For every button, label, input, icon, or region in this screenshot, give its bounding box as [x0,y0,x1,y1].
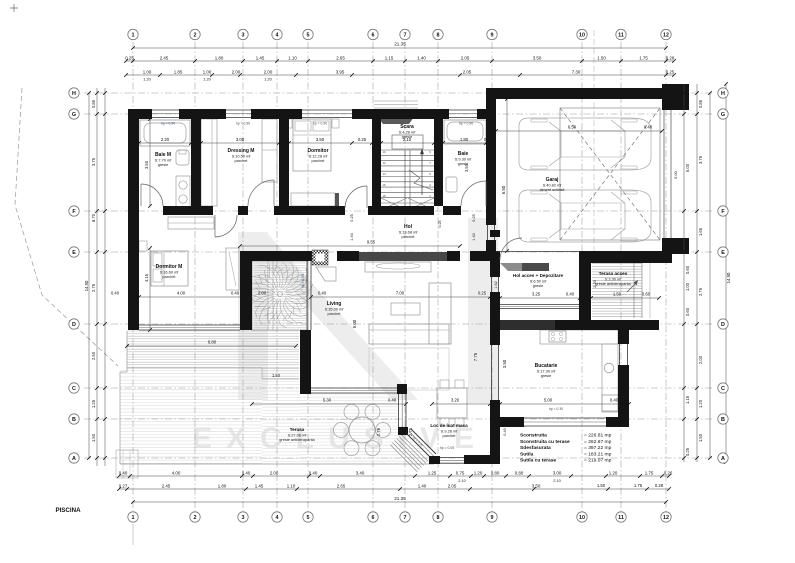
svg-text:0.25: 0.25 [438,221,442,228]
svg-text:1: 1 [132,515,135,521]
svg-text:gresie antiderapanta: gresie antiderapanta [595,281,631,286]
svg-text:1.00: 1.00 [143,69,152,74]
svg-text:1.50: 1.50 [597,483,606,488]
svg-text:0.25: 0.25 [478,291,487,296]
svg-text:Terasa acces: Terasa acces [599,271,628,276]
svg-text:1.20: 1.20 [264,78,271,82]
svg-text:Terasa: Terasa [290,427,305,432]
svg-text:1.50: 1.50 [613,292,622,297]
svg-text:12: 12 [382,161,386,165]
svg-text:10: 10 [579,515,585,521]
svg-text:2.05: 2.05 [463,69,472,74]
svg-text:1.40: 1.40 [418,483,427,488]
svg-text:parchet: parchet [235,158,249,163]
svg-text:6: 6 [372,515,375,521]
svg-text:0.40: 0.40 [318,291,327,296]
svg-text:1.40: 1.40 [350,233,354,240]
svg-text:Sconstruita: Sconstruita [520,433,547,439]
svg-text:2: 2 [194,515,197,521]
svg-text:D: D [72,322,76,328]
svg-text:hp = 0.90: hp = 0.90 [161,122,175,126]
svg-text:1.80: 1.80 [215,55,224,60]
svg-text:E: E [721,250,725,256]
svg-text:2.00: 2.00 [258,291,267,296]
svg-text:1.45: 1.45 [256,55,265,60]
svg-text:3.50: 3.50 [144,160,149,169]
svg-text:1.15: 1.15 [685,395,690,404]
svg-text:hp = 0.90: hp = 0.90 [313,122,327,126]
svg-text:H: H [721,91,725,97]
svg-text:1.10: 1.10 [288,55,297,60]
svg-text:5.00: 5.00 [352,319,357,328]
svg-text:3.00: 3.00 [553,470,562,475]
svg-text:0.85: 0.85 [698,99,703,108]
svg-text:4: 4 [276,515,279,521]
svg-text:0.28: 0.28 [666,55,675,60]
svg-text:12: 12 [663,33,669,39]
svg-text:ciment sclivisit: ciment sclivisit [540,187,566,192]
svg-text:16: 16 [382,183,386,187]
svg-text:3: 3 [242,33,245,39]
svg-text:0.40: 0.40 [231,291,240,296]
svg-text:D: D [721,322,725,328]
svg-text:0.25: 0.25 [685,447,690,456]
svg-text:12: 12 [663,515,669,521]
svg-text:8: 8 [437,515,440,521]
svg-text:2.50: 2.50 [91,351,96,360]
svg-text:3.50: 3.50 [532,483,541,488]
svg-text:1.75: 1.75 [645,470,654,475]
svg-text:5.00: 5.00 [544,398,553,403]
svg-text:4.15: 4.15 [144,273,149,282]
svg-text:2.20: 2.20 [161,137,170,142]
svg-text:9: 9 [491,515,494,521]
svg-text:6.80: 6.80 [208,340,217,345]
svg-text:0.60: 0.60 [685,265,690,274]
svg-text:hp = 0.90: hp = 0.90 [459,122,473,126]
svg-text:1.85: 1.85 [174,69,183,74]
svg-text:parchet: parchet [402,234,416,239]
svg-text:3.50: 3.50 [533,55,542,60]
svg-text:0.27: 0.27 [119,483,128,488]
svg-text:B: B [72,417,76,423]
svg-text:1: 1 [132,33,135,39]
svg-text:0.26: 0.26 [664,470,673,475]
svg-text:6.50: 6.50 [501,185,506,194]
svg-text:PISCINA: PISCINA [55,507,81,514]
svg-text:10: 10 [579,33,585,39]
svg-text:5: 5 [307,33,310,39]
svg-text:3.50: 3.50 [502,359,507,368]
svg-text:0.40: 0.40 [242,470,251,475]
svg-text:= 226.81 mp: = 226.81 mp [584,433,612,439]
svg-text:7.75: 7.75 [473,352,478,361]
svg-text:5: 5 [307,515,310,521]
svg-text:0.40: 0.40 [119,470,128,475]
svg-text:2.45: 2.45 [160,55,169,60]
svg-text:hp = 0.90: hp = 0.90 [301,274,305,288]
svg-text:0.80: 0.80 [491,470,500,475]
svg-text:0.40: 0.40 [566,292,575,297]
svg-text:8.70: 8.70 [91,213,96,222]
svg-text:18: 18 [382,194,386,198]
svg-text:3.75: 3.75 [91,157,96,166]
svg-text:11: 11 [618,515,624,521]
svg-text:2.05: 2.05 [448,483,457,488]
svg-text:0.40: 0.40 [111,291,120,296]
svg-text:gresie: gresie [533,283,544,288]
svg-text:2: 2 [194,33,197,39]
svg-text:gresie: gresie [402,134,413,139]
svg-text:Sconstruita cu terase: Sconstruita cu terase [520,439,570,445]
svg-text:3.95: 3.95 [336,69,345,74]
svg-text:5.30: 5.30 [323,398,332,403]
svg-text:4.00: 4.00 [177,291,186,296]
svg-text:2.00: 2.00 [232,69,241,74]
svg-text:0.25: 0.25 [125,55,134,60]
svg-text:0.28: 0.28 [655,483,664,488]
svg-text:1.20: 1.20 [474,470,483,475]
svg-text:G: G [72,112,76,118]
svg-text:7: 7 [404,33,407,39]
svg-text:2.10: 2.10 [553,479,560,483]
svg-text:0.90: 0.90 [685,242,690,251]
svg-text:Sdesfasurata: Sdesfasurata [520,445,551,451]
svg-text:parchet: parchet [312,158,326,163]
svg-text:2.65: 2.65 [336,55,345,60]
svg-text:6: 6 [372,33,375,39]
svg-text:2.45: 2.45 [162,483,171,488]
svg-text:1.45: 1.45 [255,483,264,488]
svg-text:10: 10 [382,150,386,154]
svg-text:Sutila: Sutila [520,451,534,457]
svg-text:3.20: 3.20 [451,398,460,403]
svg-text:2.00: 2.00 [270,470,279,475]
svg-text:1.75: 1.75 [634,483,643,488]
svg-text:gresie: gresie [541,373,552,378]
svg-text:14.90: 14.90 [726,272,731,283]
svg-text:1.75: 1.75 [639,55,648,60]
svg-text:2.00: 2.00 [698,355,703,364]
svg-text:1.20: 1.20 [609,470,618,475]
svg-text:7.30: 7.30 [572,69,581,74]
svg-text:A: A [721,456,725,462]
svg-text:= 262.67 mp: = 262.67 mp [584,439,612,445]
svg-text:0.80: 0.80 [515,470,524,475]
svg-text:hp = 0.30: hp = 0.30 [549,407,563,411]
svg-text:3.40: 3.40 [356,470,365,475]
svg-text:parchet: parchet [328,311,342,316]
svg-text:= 183.21 mp: = 183.21 mp [584,451,612,457]
svg-text:0.25: 0.25 [666,69,675,74]
svg-text:1.50: 1.50 [91,433,96,442]
svg-text:Loc de luat masa: Loc de luat masa [430,423,468,428]
svg-text:1.20: 1.20 [698,399,703,408]
svg-text:B: B [721,417,725,423]
svg-text:2.75: 2.75 [91,283,96,292]
svg-text:3.25: 3.25 [532,292,541,297]
svg-text:4.00: 4.00 [172,470,181,475]
svg-text:1.65: 1.65 [698,227,703,236]
svg-text:1.15: 1.15 [385,55,394,60]
svg-text:9: 9 [491,33,494,39]
svg-text:4: 4 [276,33,279,39]
svg-text:9.55: 9.55 [367,240,376,245]
svg-text:8: 8 [437,33,440,39]
svg-text:1.25: 1.25 [91,399,96,408]
svg-text:Hol acces + Depozitare: Hol acces + Depozitare [513,273,564,278]
svg-text:7.00: 7.00 [396,291,405,296]
svg-text:0.25: 0.25 [350,214,354,221]
svg-text:1.50: 1.50 [272,373,281,378]
svg-text:gresie antiderapanta: gresie antiderapanta [279,437,315,442]
svg-text:1.25: 1.25 [428,470,437,475]
svg-text:21.35: 21.35 [394,42,406,47]
svg-text:0.40: 0.40 [309,470,318,475]
svg-text:parchet: parchet [443,433,457,438]
svg-text:1.80: 1.80 [218,483,227,488]
svg-text:1.80: 1.80 [460,137,469,142]
svg-text:21.35: 21.35 [394,496,406,501]
svg-text:11: 11 [618,33,624,39]
svg-text:hp = 0.90: hp = 0.90 [236,122,250,126]
svg-text:0.40: 0.40 [388,398,397,403]
svg-text:5.00: 5.00 [685,163,690,172]
svg-text:gresie: gresie [158,162,169,167]
svg-text:C: C [72,386,76,392]
svg-text:5.00: 5.00 [673,170,678,179]
svg-text:14.90: 14.90 [84,280,89,291]
svg-text:H: H [72,91,76,97]
svg-text:1.20: 1.20 [203,78,210,82]
svg-text:hp = 0.05: hp = 0.05 [440,446,454,450]
svg-text:C: C [721,386,725,392]
svg-text:0.60: 0.60 [685,307,690,316]
svg-text:1.40: 1.40 [417,55,426,60]
svg-text:2.75: 2.75 [376,427,381,436]
svg-text:3: 3 [242,515,245,521]
svg-text:0.25: 0.25 [472,214,476,221]
svg-text:parchet: parchet [163,274,177,279]
svg-text:1.20: 1.20 [143,78,150,82]
svg-text:3.50: 3.50 [316,137,325,142]
svg-text:0.40: 0.40 [503,428,507,435]
svg-text:6.50: 6.50 [568,125,577,130]
svg-text:3.00: 3.00 [236,137,245,142]
svg-text:2.05: 2.05 [461,55,470,60]
svg-text:7: 7 [404,515,407,521]
svg-text:0.85: 0.85 [91,99,96,108]
svg-text:0.40: 0.40 [644,125,653,130]
svg-text:3.75: 3.75 [698,155,703,164]
svg-text:1.00: 1.00 [685,282,690,291]
svg-text:A: A [72,456,76,462]
svg-text:1.62: 1.62 [494,281,498,288]
svg-text:14: 14 [382,172,386,176]
svg-text:1.00: 1.00 [203,69,212,74]
svg-text:1.50: 1.50 [597,55,606,60]
svg-text:2.65: 2.65 [337,483,346,488]
svg-text:0.75: 0.75 [456,470,465,475]
svg-text:2.00: 2.00 [264,69,273,74]
svg-text:G: G [721,112,725,118]
svg-text:1.50: 1.50 [698,433,703,442]
svg-text:0.90: 0.90 [685,92,690,101]
svg-text:0.40: 0.40 [610,398,619,403]
svg-text:1.40: 1.40 [472,233,476,240]
svg-text:= 397.22 mp: = 397.22 mp [584,445,612,451]
svg-text:1.10: 1.10 [287,483,296,488]
svg-text:0.25: 0.25 [358,137,367,142]
svg-text:gresie: gresie [458,161,469,166]
svg-text:E: E [72,250,76,256]
svg-text:2.10: 2.10 [458,479,465,483]
svg-text:Sutila cu terase: Sutila cu terase [520,458,556,464]
svg-text:= 219.07 mp: = 219.07 mp [584,458,612,464]
svg-text:2.75: 2.75 [698,287,703,296]
svg-text:0.60: 0.60 [642,292,651,297]
